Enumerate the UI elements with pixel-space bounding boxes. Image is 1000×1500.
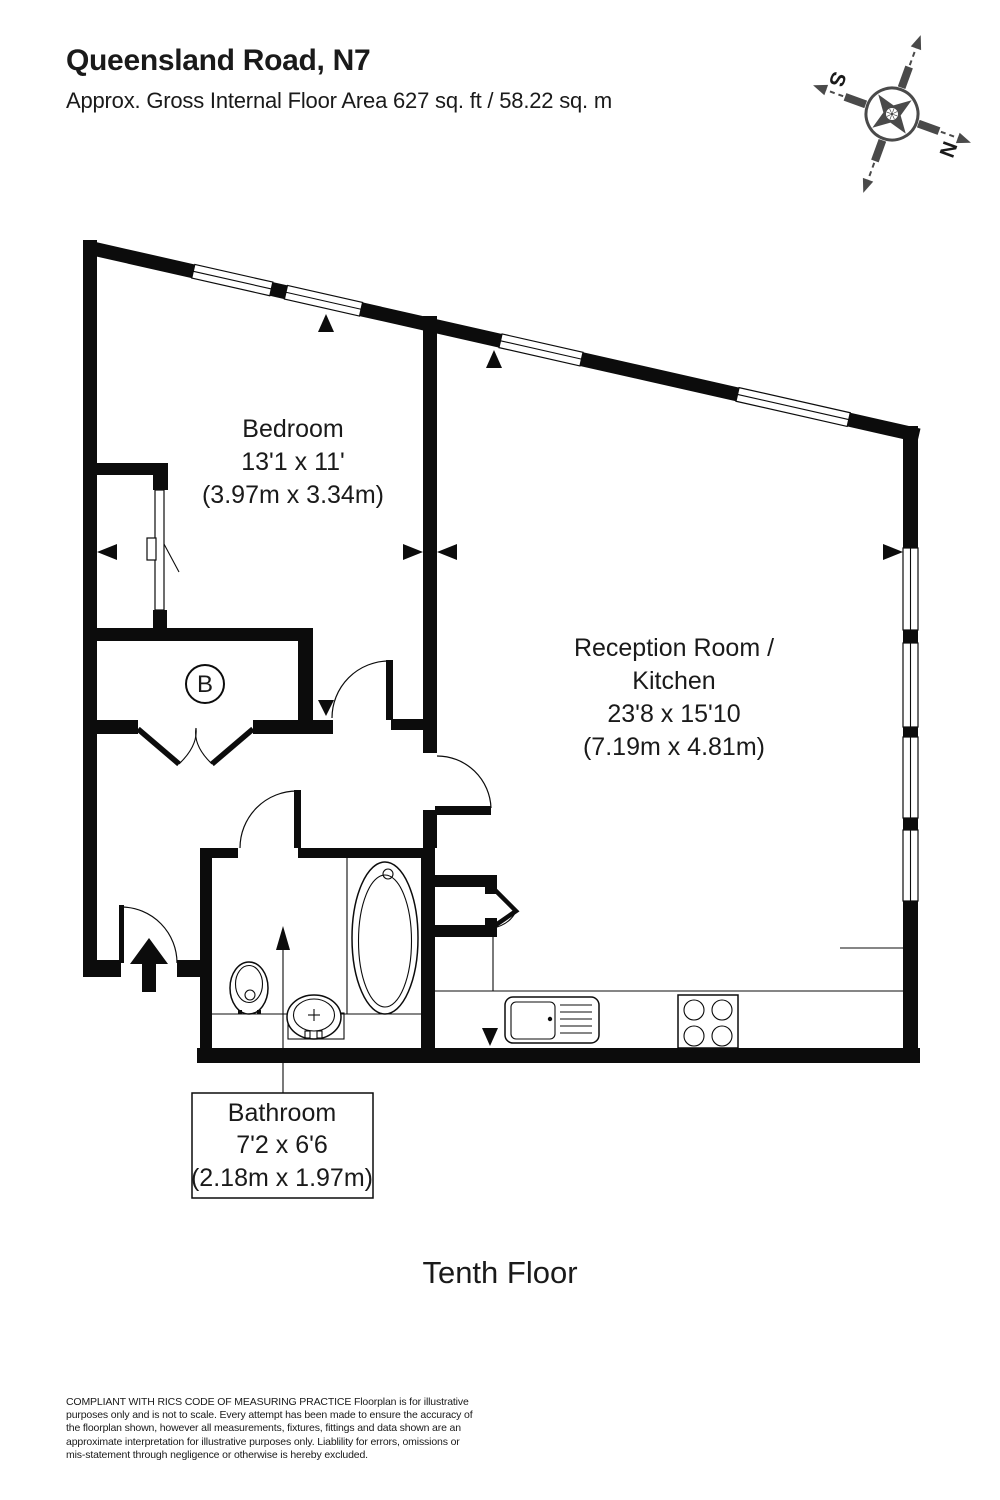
bedroom-door [332,660,393,720]
bedroom-dims-imperial: 13'1 x 11' [241,448,345,476]
bathroom-dims-metric: (2.18m x 1.97m) [191,1164,373,1192]
bedroom-name: Bedroom [242,415,343,443]
top-wall-windows [84,240,920,442]
bedroom-label: Bedroom 13'1 x 11' (3.97m x 3.34m) [202,415,384,509]
reception-name-line2: Kitchen [632,667,715,695]
kitchen-counter [435,937,903,991]
disclaimer-line: approximate interpretation for illustrat… [66,1436,496,1449]
disclaimer-line: purposes only and is not to scale. Every… [66,1409,496,1422]
bathroom-dims-imperial: 7'2 x 6'6 [236,1131,328,1159]
disclaimer-line: mis-statement through negligence or othe… [66,1449,496,1462]
floorplan-drawing: B Bedroom 13'1 x 11' (3.97m x 3.34m) Rec… [0,0,1000,1500]
bathroom-name: Bathroom [228,1099,336,1127]
bathtub [347,858,418,1014]
reception-label: Reception Room / Kitchen 23'8 x 15'10 (7… [574,634,774,761]
wardrobe-sliding-door [147,490,179,610]
basin [287,995,344,1039]
floor-label: Tenth Floor [422,1255,577,1290]
entrance-arrow [130,938,168,992]
compass-south-label: S [824,69,850,90]
closet-b-label: B [197,671,213,698]
kitchen-hob [678,995,738,1048]
bathroom-door [240,790,301,848]
reception-door [435,756,491,815]
reception-dims-imperial: 23'8 x 15'10 [607,700,740,728]
closet-double-doors [138,728,253,764]
window [903,548,918,901]
compass-icon: N S [784,6,999,221]
bedroom-dims-metric: (3.97m x 3.34m) [202,481,384,509]
kitchen-sink [505,997,599,1043]
boiler-closet-symbol: B [186,665,224,703]
disclaimer-line: COMPLIANT WITH RICS CODE OF MEASURING PR… [66,1396,496,1409]
plan-walls [83,240,920,1063]
disclaimer-line: the floorplan shown, however all measure… [66,1422,496,1435]
floorplan-page: Queensland Road, N7 Approx. Gross Intern… [0,0,1000,1500]
rics-disclaimer: COMPLIANT WITH RICS CODE OF MEASURING PR… [66,1396,496,1462]
window [192,264,851,426]
reception-name-line1: Reception Room / [574,634,774,662]
reception-dims-metric: (7.19m x 4.81m) [583,733,765,761]
